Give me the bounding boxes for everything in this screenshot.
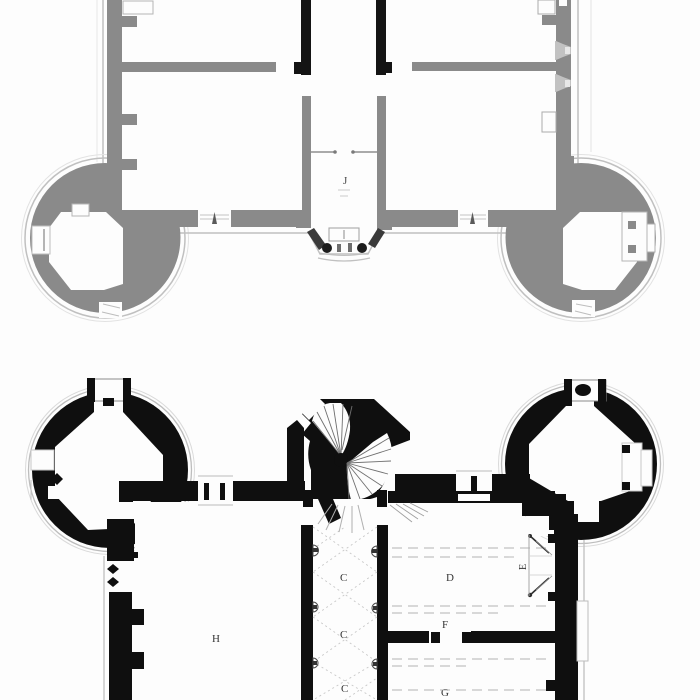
svg-text:E: E <box>518 564 529 570</box>
svg-text:D: D <box>446 572 454 584</box>
svg-text:J: J <box>343 175 348 187</box>
svg-text:C: C <box>340 572 347 584</box>
svg-text:F: F <box>442 619 448 631</box>
svg-text:G: G <box>441 687 449 699</box>
svg-text:C: C <box>341 683 348 695</box>
svg-text:C: C <box>340 629 347 641</box>
svg-text:H: H <box>212 633 220 645</box>
